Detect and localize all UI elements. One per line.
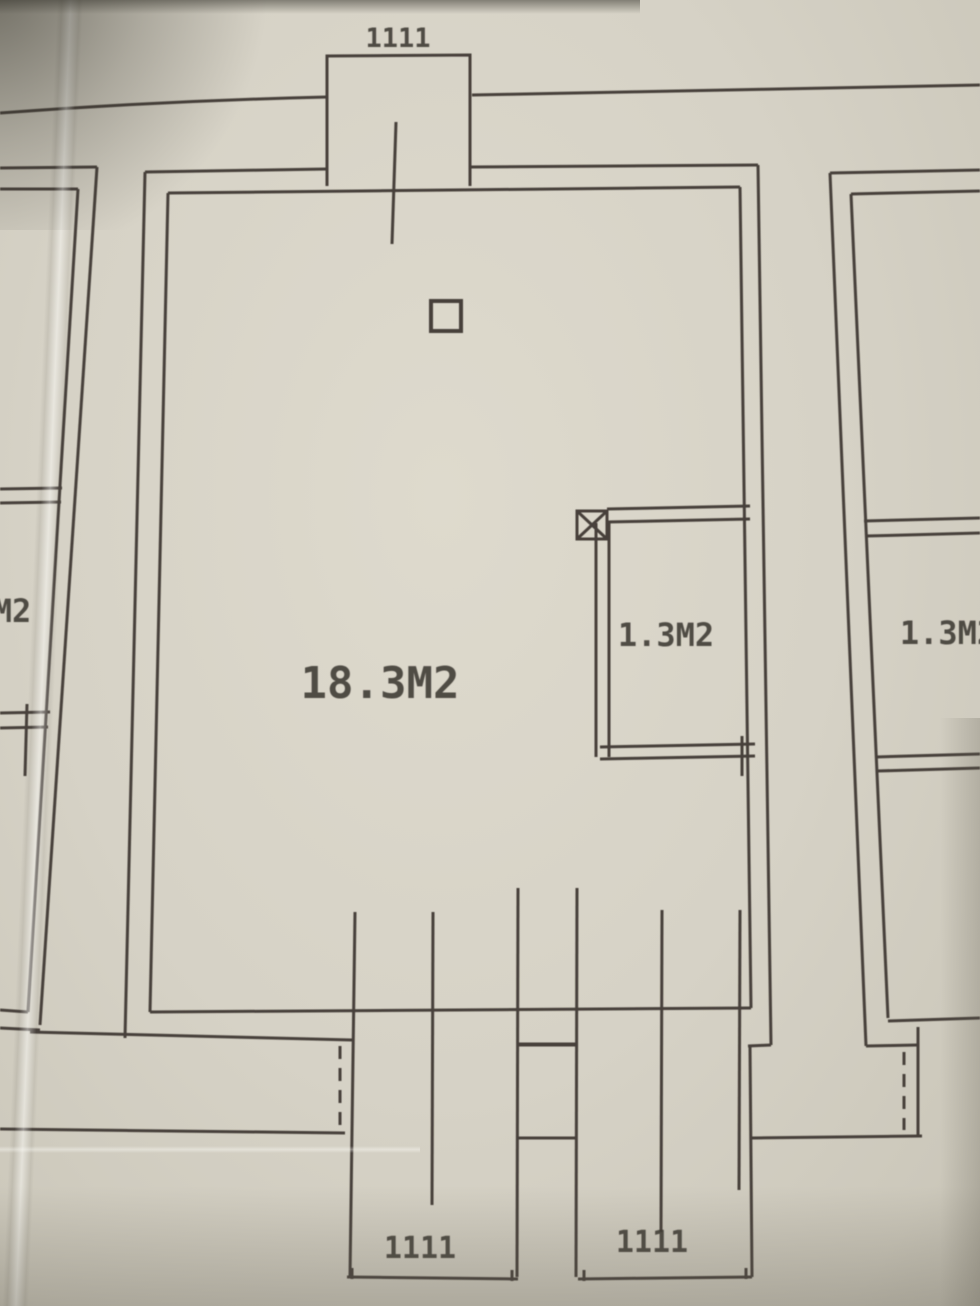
main-room-area-label: 18.3M2 xyxy=(301,658,460,709)
right-apartment-walls xyxy=(752,170,980,1138)
top-balcony-dimension: 1111 xyxy=(365,23,430,54)
shaft-x-symbol xyxy=(577,511,607,539)
left-window-axis xyxy=(25,704,27,776)
top-window-axis xyxy=(392,122,396,244)
floor-plan-photo: 1111 18.3M2 1.3M2 1.3M2 M2 1111 1111 xyxy=(0,0,980,1306)
closet-area-label: 1.3M2 xyxy=(618,616,714,654)
right-balcony-window-axis xyxy=(661,910,662,1232)
top-balcony xyxy=(327,55,470,244)
right-apartment-area-label: 1.3M2 xyxy=(900,614,980,652)
bottom-balconies xyxy=(0,888,752,1281)
main-room-walls xyxy=(30,165,771,1046)
floor-plan-drawing: 1111 18.3M2 1.3M2 1.3M2 M2 1111 1111 xyxy=(0,0,980,1306)
left-apartment-area-label-partial: M2 xyxy=(0,592,31,630)
bottom-left-balcony-dimension: 1111 xyxy=(384,1231,456,1266)
left-balcony-window-axis xyxy=(432,912,433,1205)
exterior-wall-line xyxy=(0,85,980,113)
bottom-right-balcony-dimension: 1111 xyxy=(616,1225,688,1260)
column-symbol xyxy=(431,301,461,331)
